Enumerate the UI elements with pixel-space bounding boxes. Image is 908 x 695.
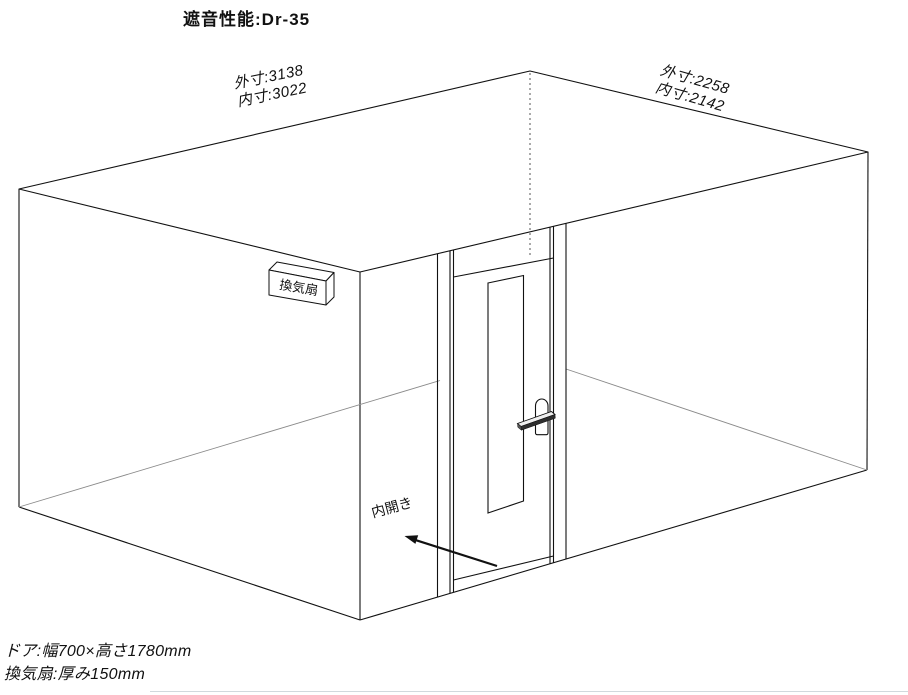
door-window	[488, 276, 524, 514]
interior-floor-edges	[19, 369, 867, 507]
page-title: 遮音性能:Dr-35	[183, 5, 310, 30]
note-vent-thickness: 換気扇:厚み150mm	[4, 660, 145, 684]
room-wireframe-drawing	[0, 0, 908, 695]
note-door-size: ドア:幅700×高さ1780mm	[4, 637, 192, 661]
door-swing-arrow	[405, 535, 498, 566]
diagram-page: 遮音性能:Dr-35 外寸:3138 内寸:3022 外寸:2258 内寸:21…	[0, 0, 908, 695]
room-top-face	[19, 71, 868, 272]
room-bottom-edges	[19, 470, 867, 620]
